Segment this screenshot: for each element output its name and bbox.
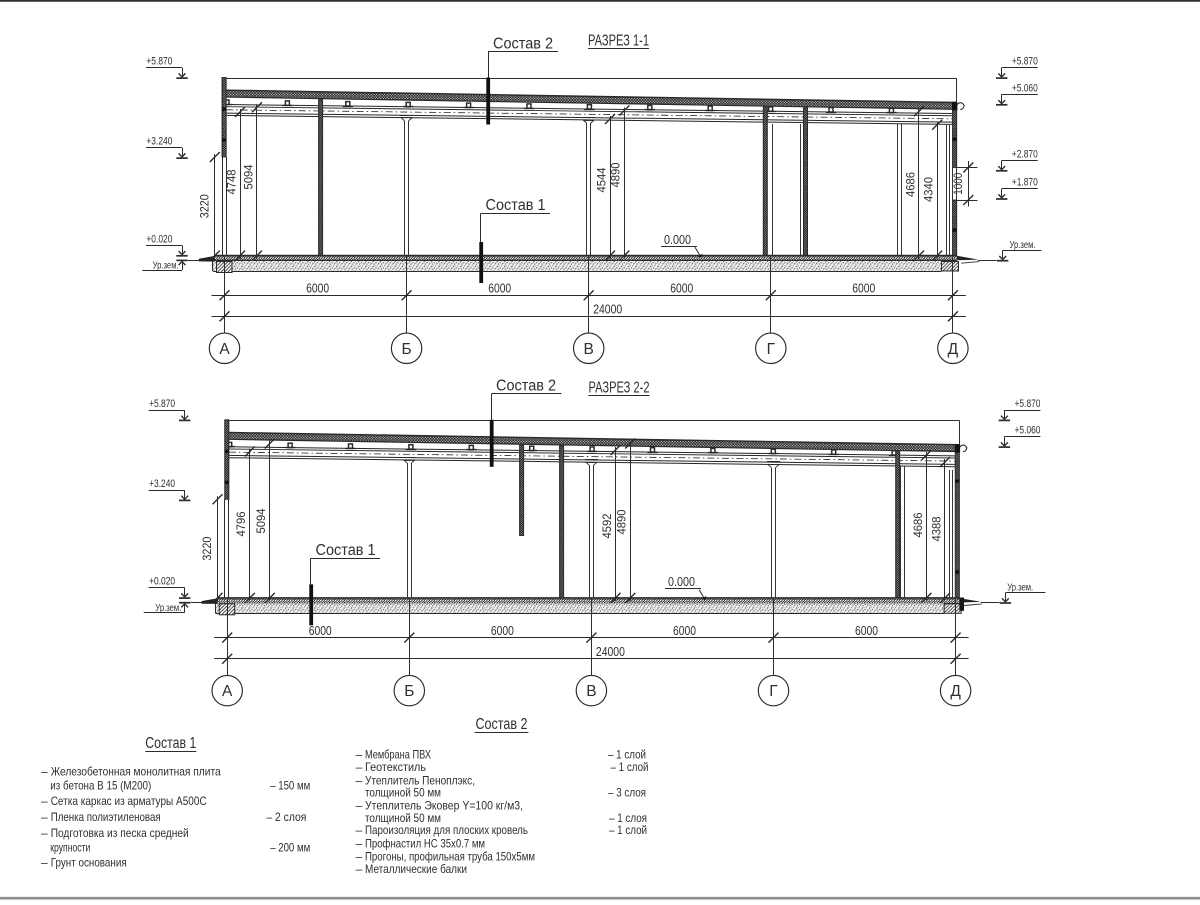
svg-text:Состав 2: Состав 2 (476, 716, 528, 733)
svg-text:4388: 4388 (929, 516, 943, 541)
svg-text:6000: 6000 (670, 282, 693, 296)
svg-text:Б: Б (402, 341, 412, 358)
svg-text:4340: 4340 (922, 177, 936, 202)
svg-text:6000: 6000 (855, 624, 878, 638)
svg-text:– 150 мм: – 150 мм (270, 779, 310, 793)
svg-text:6000: 6000 (673, 624, 696, 638)
svg-text:Состав 2: Состав 2 (493, 35, 553, 52)
svg-text:крупности: крупности (50, 841, 90, 855)
svg-text:Ур.зем.: Ур.зем. (153, 260, 179, 272)
svg-text:Пароизоляция для плоских крове: Пароизоляция для плоских кровель (365, 823, 528, 837)
svg-text:В: В (584, 341, 594, 358)
svg-text:4592: 4592 (600, 513, 614, 538)
svg-text:3220: 3220 (198, 194, 212, 218)
svg-text:–: – (356, 760, 363, 774)
svg-text:Железобетонная монолитная пли: Железобетонная монолитная плита (51, 764, 221, 778)
svg-text:Ур.зем.: Ур.зем. (1007, 581, 1033, 593)
svg-text:В: В (586, 683, 596, 700)
svg-text:Утеплитель Эковер Y=100 кг/м3,: Утеплитель Эковер Y=100 кг/м3, (365, 798, 523, 812)
svg-text:– 1 слой: – 1 слой (611, 760, 649, 774)
svg-text:4748: 4748 (224, 169, 238, 194)
svg-text:из бетона В 15 (М200): из бетона В 15 (М200) (50, 779, 151, 793)
svg-text:А: А (222, 683, 233, 700)
svg-text:–: – (41, 826, 48, 840)
svg-text:+5.870: +5.870 (1015, 398, 1041, 410)
svg-text:Грунт основания: Грунт основания (51, 856, 127, 870)
svg-text:4890: 4890 (615, 509, 629, 534)
svg-text:Подготовка из песка средней: Подготовка из песка средней (51, 826, 189, 840)
svg-text:4796: 4796 (234, 511, 248, 536)
svg-text:1000: 1000 (951, 173, 965, 195)
svg-text:+5.870: +5.870 (149, 398, 175, 410)
svg-text:–: – (356, 798, 363, 812)
svg-text:–: – (41, 794, 48, 808)
svg-text:4890: 4890 (609, 162, 623, 187)
svg-text:РАЗРЕЗ 2-2: РАЗРЕЗ 2-2 (589, 380, 650, 397)
svg-text:+0.020: +0.020 (146, 233, 172, 245)
svg-text:–: – (356, 862, 363, 876)
svg-text:+3.240: +3.240 (149, 478, 175, 490)
svg-text:24000: 24000 (593, 303, 622, 317)
svg-text:–: – (41, 810, 48, 824)
svg-text:6000: 6000 (491, 624, 514, 638)
svg-text:– 3 слоя: – 3 слоя (608, 786, 646, 800)
svg-text:+3.240: +3.240 (146, 136, 172, 148)
svg-text:Состав 1: Состав 1 (316, 542, 376, 559)
svg-text:–: – (356, 773, 363, 787)
svg-text:Г: Г (769, 683, 778, 700)
svg-text:0.000: 0.000 (668, 575, 695, 589)
svg-text:Пленка полиэтиленовая: Пленка полиэтиленовая (51, 810, 161, 824)
svg-text:6000: 6000 (309, 624, 332, 638)
svg-text:Состав 2: Состав 2 (496, 378, 556, 395)
svg-text:0.000: 0.000 (664, 233, 691, 247)
svg-text:+5.870: +5.870 (1012, 56, 1038, 68)
svg-text:+1.870: +1.870 (1012, 177, 1038, 189)
svg-text:3220: 3220 (200, 536, 214, 560)
svg-text:5094: 5094 (241, 164, 255, 189)
svg-text:+0.020: +0.020 (149, 576, 175, 588)
svg-text:5094: 5094 (254, 508, 268, 533)
svg-text:– 200 мм: – 200 мм (270, 841, 310, 855)
svg-text:6000: 6000 (306, 282, 329, 296)
svg-text:– 1 слой: – 1 слой (609, 823, 647, 837)
svg-text:–: – (41, 764, 48, 778)
svg-text:+2.870: +2.870 (1012, 148, 1038, 160)
svg-text:– 2 слоя: – 2 слоя (266, 810, 306, 824)
svg-text:РАЗРЕЗ 1-1: РАЗРЕЗ 1-1 (588, 33, 649, 50)
svg-text:–: – (356, 823, 363, 837)
svg-text:+5.060: +5.060 (1012, 82, 1038, 94)
svg-text:24000: 24000 (596, 645, 625, 659)
svg-text:Б: Б (404, 683, 414, 700)
svg-text:Д: Д (950, 683, 961, 700)
svg-text:Состав 1: Состав 1 (486, 197, 546, 214)
svg-text:Ур.зем.: Ур.зем. (1010, 239, 1036, 251)
svg-text:Металлические балки: Металлические балки (365, 862, 467, 876)
svg-text:Г: Г (767, 341, 776, 358)
svg-text:Сетка каркас из арматуры А500С: Сетка каркас из арматуры А500С (51, 794, 207, 808)
svg-text:4686: 4686 (911, 512, 925, 537)
svg-text:–: – (41, 856, 48, 870)
svg-text:6000: 6000 (488, 282, 511, 296)
svg-text:Геотекстиль: Геотекстиль (365, 760, 426, 774)
svg-text:6000: 6000 (852, 282, 875, 296)
svg-text:Состав 1: Состав 1 (145, 735, 196, 752)
svg-text:4544: 4544 (594, 167, 608, 192)
svg-text:А: А (219, 341, 230, 358)
svg-text:4686: 4686 (903, 172, 917, 197)
svg-text:+5.870: +5.870 (146, 56, 172, 68)
svg-text:Ур.зем.: Ур.зем. (155, 602, 181, 614)
svg-text:+5.060: +5.060 (1015, 425, 1041, 437)
svg-text:Д: Д (948, 341, 959, 358)
